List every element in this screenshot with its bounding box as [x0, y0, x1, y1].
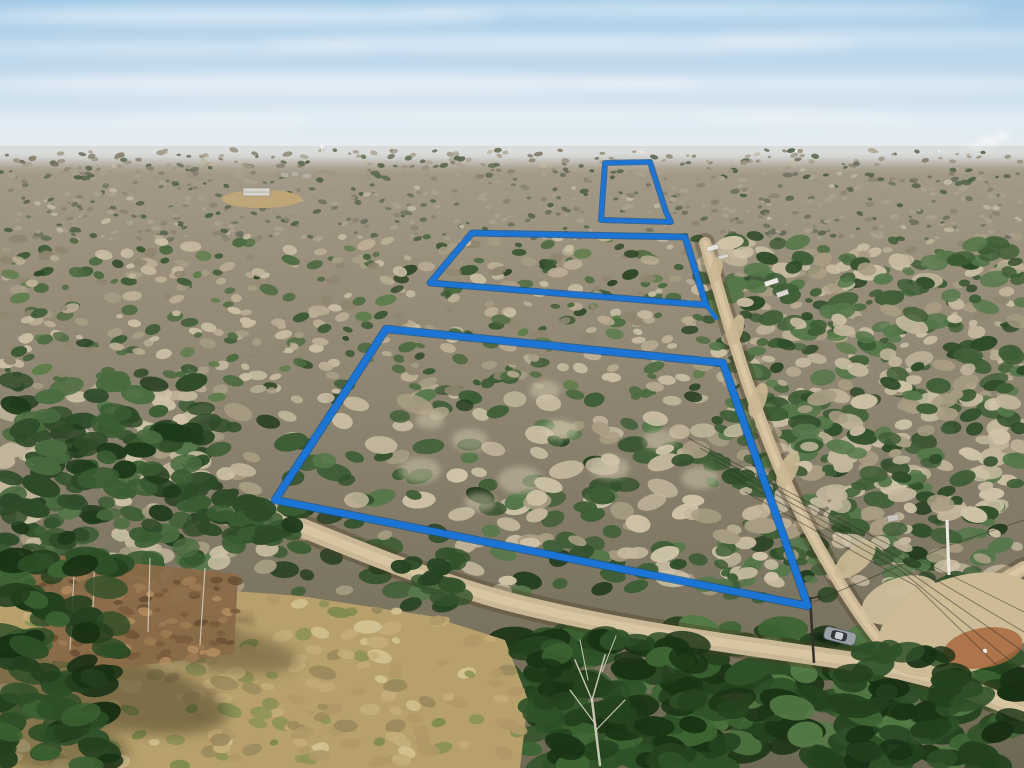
white-utility-pole: [947, 520, 949, 575]
aerial-photo-stage: [0, 0, 1024, 768]
aerial-photo: [0, 0, 1024, 768]
